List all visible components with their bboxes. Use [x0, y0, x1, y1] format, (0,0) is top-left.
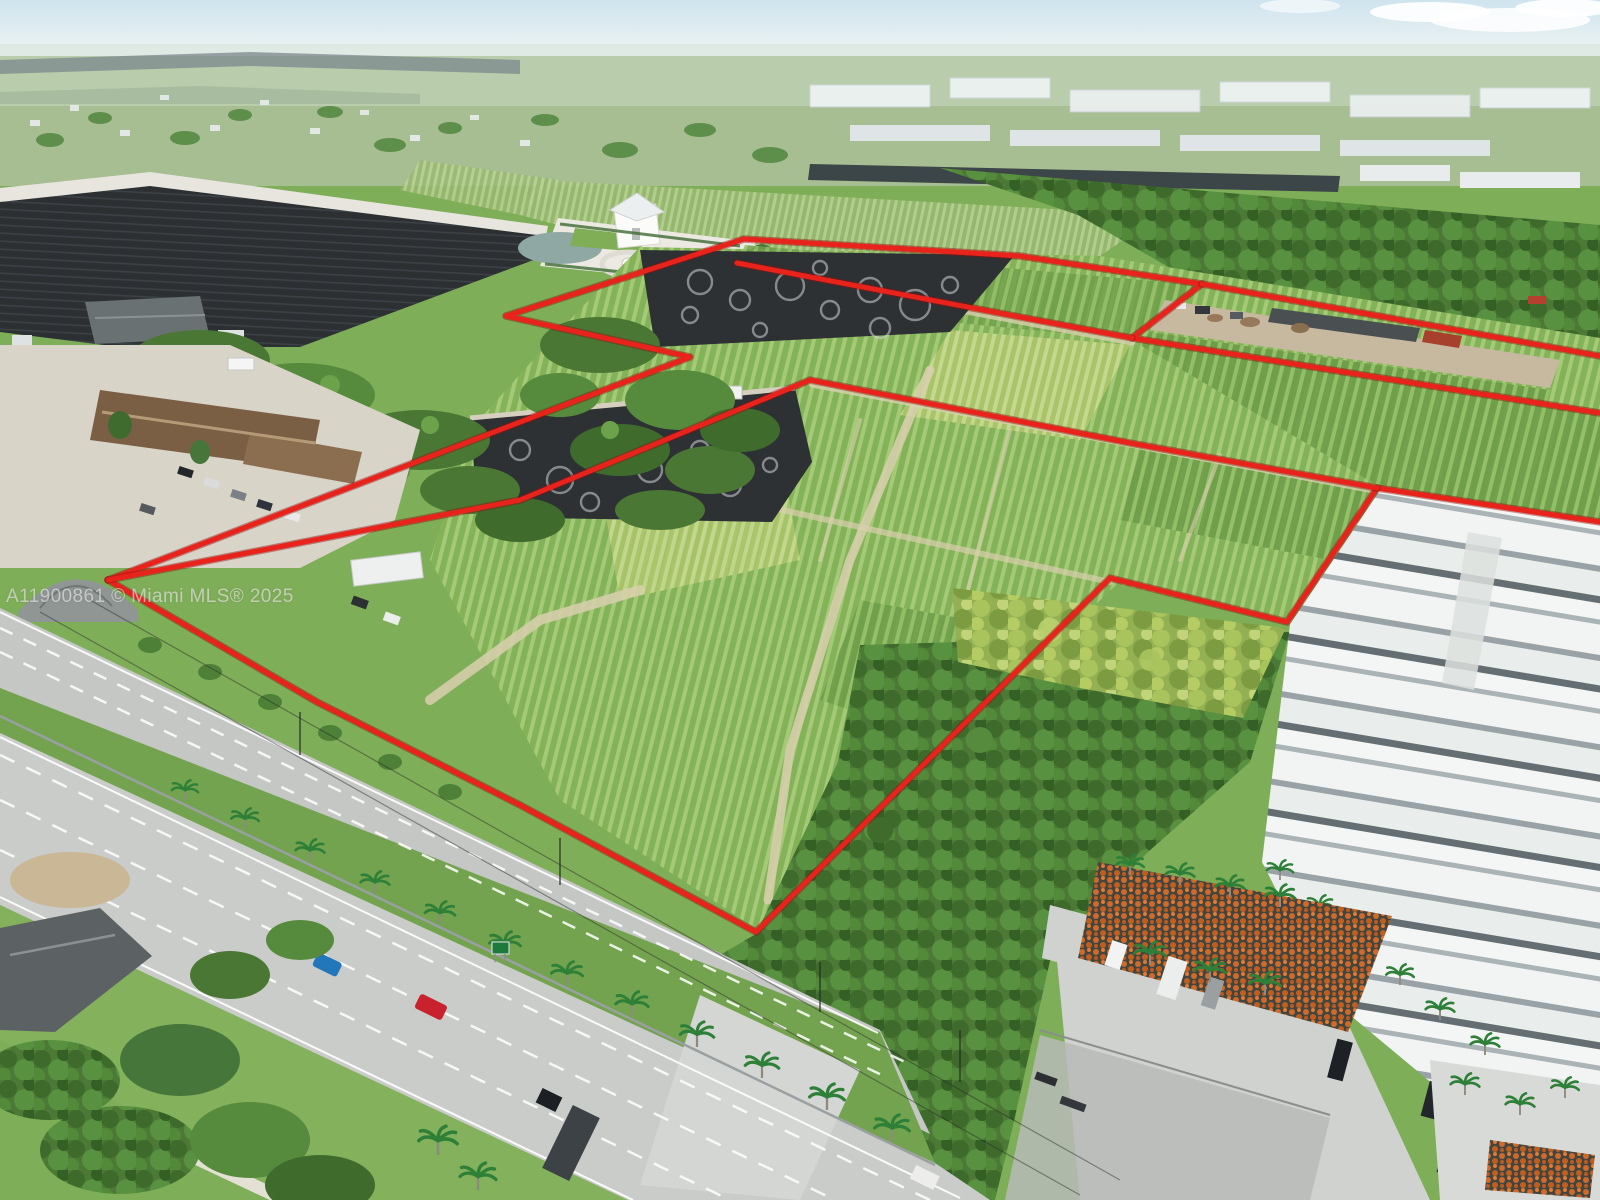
red-truck	[1528, 296, 1546, 304]
dirt-patch	[10, 852, 130, 908]
horizon-development	[0, 46, 1600, 192]
photo-viewer: A11900861 © Miami MLS® 2025	[0, 0, 1600, 1200]
truck	[1195, 306, 1210, 314]
mls-watermark: A11900861 © Miami MLS® 2025	[6, 586, 294, 608]
